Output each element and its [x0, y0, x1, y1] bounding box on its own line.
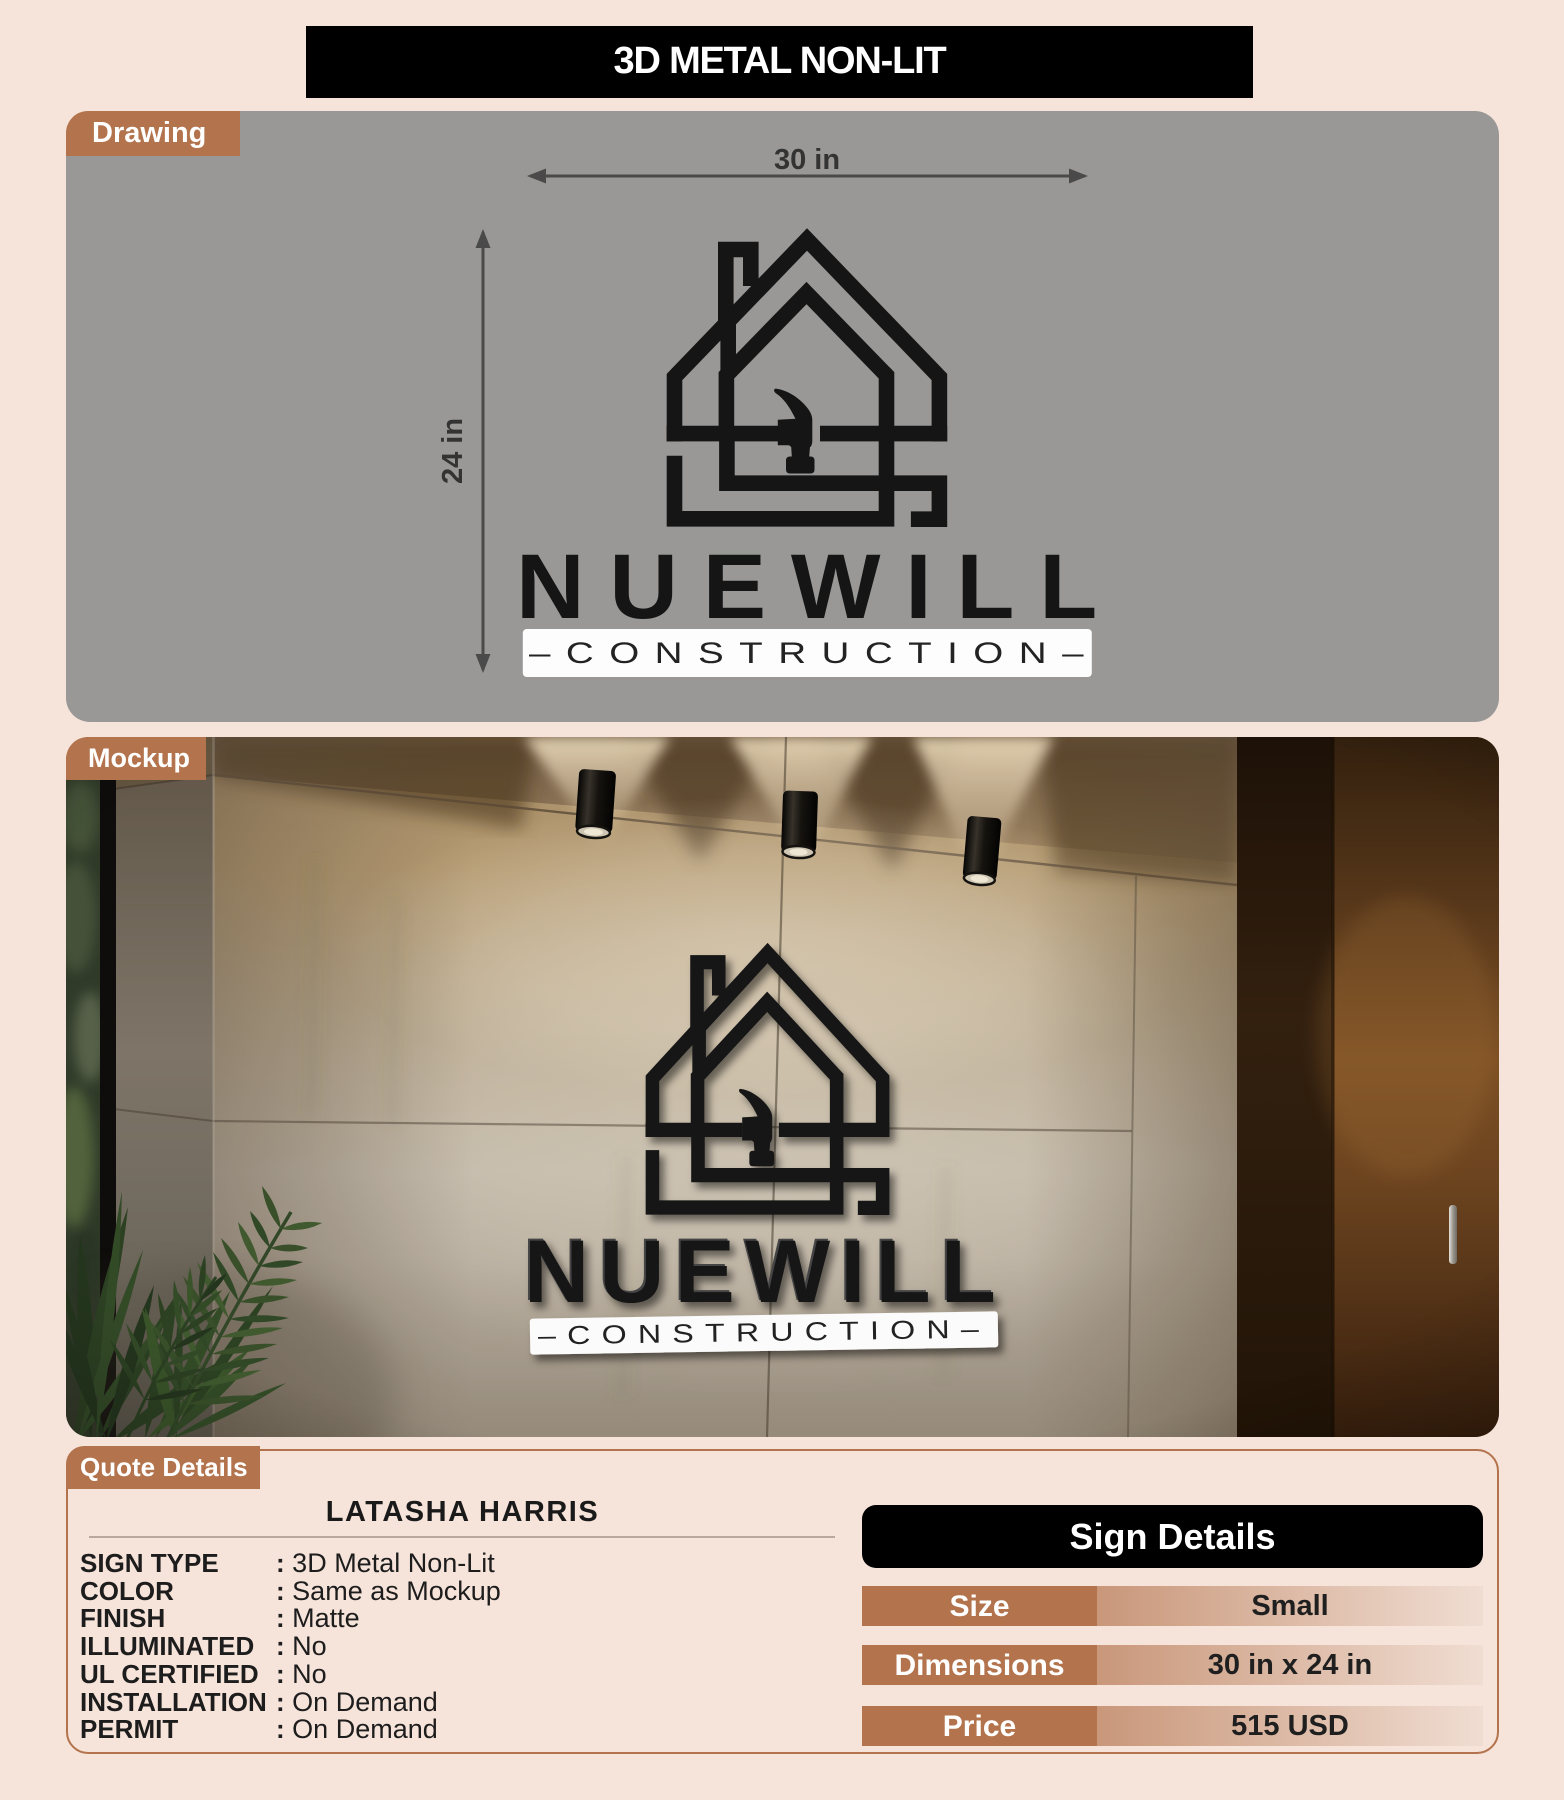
svg-text:NUEWILL: NUEWILL [516, 536, 1122, 638]
svg-text:–CONSTRUCTION–: –CONSTRUCTION– [529, 637, 1099, 670]
svg-text:30 in: 30 in [774, 144, 840, 176]
svg-text:24 in: 24 in [437, 418, 469, 484]
